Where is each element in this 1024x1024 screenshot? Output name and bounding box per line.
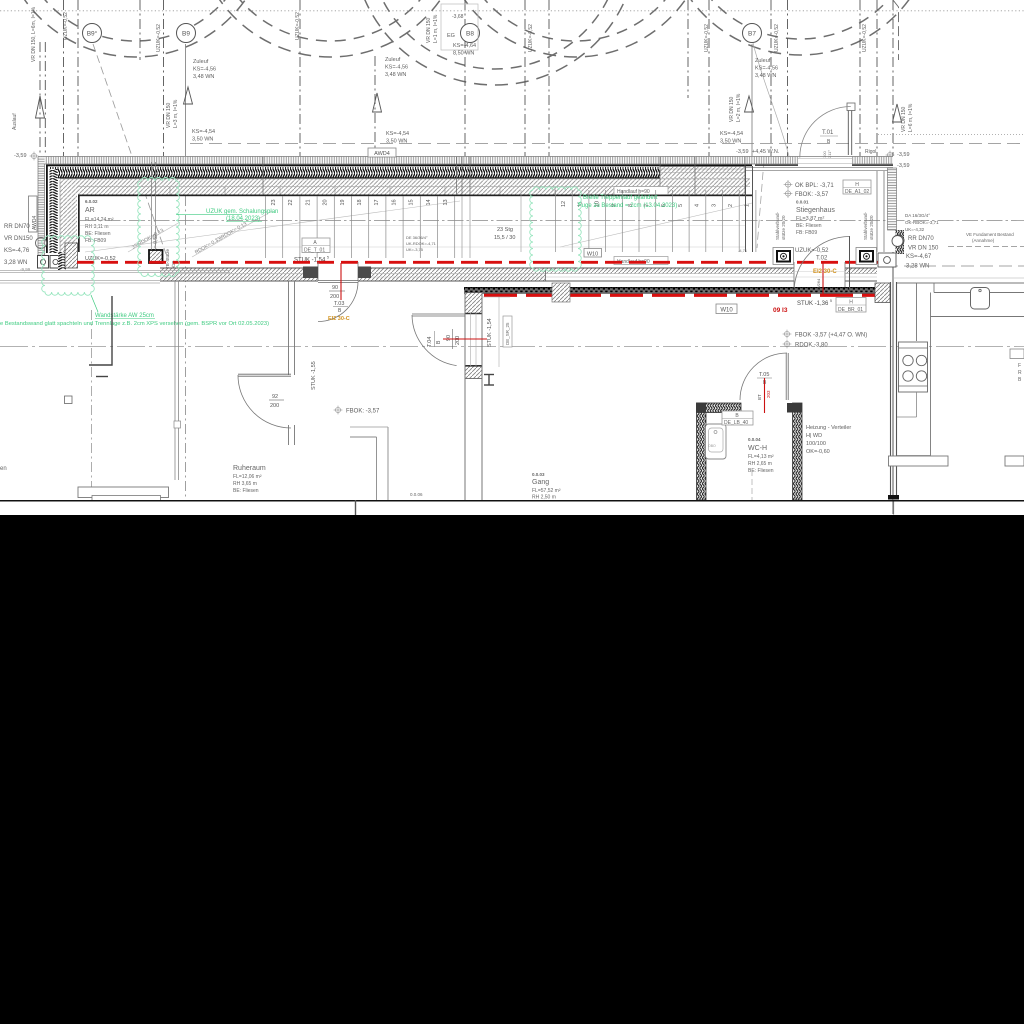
svg-text:FL=57,52 m²: FL=57,52 m² <box>532 488 561 494</box>
svg-text:3,50 WN: 3,50 WN <box>192 137 213 143</box>
svg-text:(Annahme): (Annahme) <box>972 238 995 243</box>
svg-text:DE_A1_02: DE_A1_02 <box>845 189 869 195</box>
svg-text:KS=-4,56: KS=-4,56 <box>193 67 216 73</box>
svg-text:DE_LB_40: DE_LB_40 <box>724 420 748 426</box>
svg-text:FB: FB09: FB: FB09 <box>796 230 817 236</box>
svg-text:FL=14,24 m²: FL=14,24 m² <box>85 217 114 223</box>
svg-text:-3,68: -3,68 <box>452 14 464 20</box>
svg-text:UZUK gem. Schalungsplan: UZUK gem. Schalungsplan <box>206 209 278 215</box>
svg-text:4: 4 <box>695 204 701 207</box>
svg-text:5: 5 <box>830 299 832 303</box>
svg-text:stütze 20/20: stütze 20/20 <box>781 215 786 240</box>
svg-text:UZUK=-0,52: UZUK=-0,52 <box>63 12 69 40</box>
svg-text:UZUK=-0,52: UZUK=-0,52 <box>528 24 534 52</box>
svg-text:T.03: T.03 <box>334 301 344 307</box>
svg-text:DE 36/36/4°: DE 36/36/4° <box>406 235 428 240</box>
svg-text:+4,45 W.N.: +4,45 W.N. <box>752 149 780 155</box>
svg-text:0.0.01: 0.0.01 <box>796 200 809 205</box>
svg-text:VE Fundament Bestand: VE Fundament Bestand <box>966 232 1014 237</box>
svg-text:AWD4: AWD4 <box>32 216 38 230</box>
svg-text:13: 13 <box>443 199 449 205</box>
svg-text:Stahlverbund-: Stahlverbund- <box>775 211 780 240</box>
svg-text:Wandstärke AW 25cm: Wandstärke AW 25cm <box>95 313 154 319</box>
svg-text:KS=-4,56: KS=-4,56 <box>385 65 408 71</box>
svg-text:OBO: OBO <box>708 444 716 448</box>
svg-text:B9°: B9° <box>87 30 98 38</box>
svg-text:Gang: Gang <box>532 479 549 486</box>
svg-text:203: 203 <box>766 390 771 398</box>
svg-text:UK=-3,75: UK=-3,75 <box>406 247 424 252</box>
svg-text:17: 17 <box>374 199 380 205</box>
svg-text:VR DN 150: VR DN 150 <box>901 106 907 132</box>
svg-text:BE: Fliesen: BE: Fliesen <box>796 223 822 229</box>
svg-text:200: 200 <box>330 294 339 300</box>
svg-text:VR DN 150: VR DN 150 <box>166 102 172 128</box>
svg-text:KS=-4,54: KS=-4,54 <box>720 131 743 137</box>
svg-text:AR: AR <box>85 207 95 214</box>
svg-text:DA 16/3G/4°: DA 16/3G/4° <box>905 213 930 218</box>
svg-text:e Bestandswand glatt spachteln: e Bestandswand glatt spachteln und Trenn… <box>0 321 269 327</box>
svg-text:23 Stg: 23 Stg <box>497 227 513 233</box>
svg-text:KS=-4,54: KS=-4,54 <box>192 129 215 135</box>
svg-text:RR DN70: RR DN70 <box>4 224 30 230</box>
svg-text:H: H <box>849 300 853 306</box>
svg-text:UZUK=-0,52: UZUK=-0,52 <box>774 24 780 52</box>
svg-text:VR DN 150, L=6m, I=1%: VR DN 150, L=6m, I=1% <box>31 6 37 62</box>
svg-text:EI2 30-C: EI2 30-C <box>328 316 350 322</box>
svg-text:20: 20 <box>323 199 329 205</box>
svg-text:EG: EG <box>447 33 455 39</box>
svg-text:DE_T_01: DE_T_01 <box>304 248 325 254</box>
svg-text:KS=-4,67: KS=-4,67 <box>906 254 932 260</box>
svg-text:stütze 20/20: stütze 20/20 <box>869 215 874 240</box>
svg-text:90: 90 <box>332 285 338 291</box>
svg-text:22: 22 <box>288 199 294 205</box>
svg-text:T.01: T.01 <box>822 130 834 136</box>
svg-text:RH 2,65 m: RH 2,65 m <box>748 461 772 467</box>
svg-text:5: 5 <box>678 204 684 207</box>
svg-text:15: 15 <box>409 199 415 205</box>
svg-text:KS=-4,56: KS=-4,56 <box>755 66 778 72</box>
svg-text:12: 12 <box>561 201 567 207</box>
svg-text:3,28 WN: 3,28 WN <box>4 260 27 266</box>
svg-text:(18.04.2023): (18.04.2023) <box>226 216 260 222</box>
svg-text:L=1 m, I=1%: L=1 m, I=1% <box>433 14 439 43</box>
svg-text:3,48 WN: 3,48 WN <box>755 73 776 79</box>
svg-text:KS=-4,76: KS=-4,76 <box>4 248 30 254</box>
svg-text:DE_BR_01: DE_BR_01 <box>838 307 863 313</box>
svg-text:Ruheraum: Ruheraum <box>233 465 266 472</box>
svg-text:-4,71: -4,71 <box>738 248 748 253</box>
svg-text:VR DN 150: VR DN 150 <box>908 246 939 252</box>
svg-text:0.0.03: 0.0.03 <box>532 472 545 477</box>
svg-text:EI2 30-C: EI2 30-C <box>813 269 837 275</box>
svg-text:-3,59: -3,59 <box>14 153 27 159</box>
svg-text:3: 3 <box>711 204 717 207</box>
svg-text:-9,99: -9,99 <box>20 267 31 272</box>
svg-text:VR DN 150: VR DN 150 <box>426 17 432 43</box>
svg-text:UK-RDOK=-4,71: UK-RDOK=-4,71 <box>406 241 437 246</box>
svg-text:16: 16 <box>391 199 397 205</box>
svg-text:19: 19 <box>340 199 346 205</box>
svg-text:Zuleuf: Zuleuf <box>193 59 209 65</box>
svg-text:VR DN150: VR DN150 <box>4 236 33 242</box>
svg-text:Stiegenhaus: Stiegenhaus <box>796 207 835 214</box>
svg-text:FL=12,06 m²: FL=12,06 m² <box>233 474 262 480</box>
svg-text:0.0.06: 0.0.06 <box>410 492 423 497</box>
svg-text:L=3 m, I=1%: L=3 m, I=1% <box>173 99 179 128</box>
svg-text:STUK -1,55: STUK -1,55 <box>311 361 317 390</box>
svg-text:Heizung - Verteiler: Heizung - Verteiler <box>806 425 851 431</box>
svg-text:H: H <box>855 182 859 188</box>
svg-text:98/264: 98/264 <box>816 278 821 291</box>
svg-text:FBOK -3,57 (+4,47 O. WN): FBOK -3,57 (+4,47 O. WN) <box>795 333 867 339</box>
svg-text:UZUK=-0,52: UZUK=-0,52 <box>295 12 301 40</box>
svg-text:W10: W10 <box>587 252 598 258</box>
svg-text:-3,59: -3,59 <box>897 163 910 169</box>
svg-text:Zuleuf: Zuleuf <box>755 58 771 64</box>
svg-text:FBOK: -3,57: FBOK: -3,57 <box>795 192 829 198</box>
svg-text:0.0.04: 0.0.04 <box>748 437 761 442</box>
svg-text:KS=-4,64: KS=-4,64 <box>453 43 476 49</box>
svg-text:VR DN 150: VR DN 150 <box>729 96 735 122</box>
svg-text:Breite Treppenlauf geändert: Breite Treppenlauf geändert <box>583 195 658 201</box>
svg-text:100/100: 100/100 <box>806 441 826 447</box>
svg-text:Zuleuf: Zuleuf <box>385 57 401 63</box>
svg-text:BT: BT <box>757 394 762 400</box>
svg-text:OK BPL: -3,71: OK BPL: -3,71 <box>795 183 834 189</box>
svg-text:OK-RBOK=-3,71: OK-RBOK=-3,71 <box>905 220 939 225</box>
svg-text:B7: B7 <box>748 31 756 38</box>
svg-text:UZUK=-0,52: UZUK=-0,52 <box>704 24 710 52</box>
svg-text:3,28 WN: 3,28 WN <box>906 264 929 270</box>
svg-text:DE_SR_25: DE_SR_25 <box>505 322 510 345</box>
svg-text:2: 2 <box>728 204 734 207</box>
svg-text:92: 92 <box>272 394 278 400</box>
svg-text:21: 21 <box>305 199 311 205</box>
svg-text:F: F <box>1018 363 1021 369</box>
svg-text:L=2 m, I=1%: L=2 m, I=1% <box>736 93 742 122</box>
svg-text:RH 3,11 m: RH 3,11 m <box>85 224 109 230</box>
svg-text:UZUK=-0,52: UZUK=-0,52 <box>156 24 162 52</box>
svg-text:H| WD: H| WD <box>806 433 822 439</box>
svg-text:T.05: T.05 <box>759 372 769 378</box>
svg-text:UK=-4,32: UK=-4,32 <box>905 227 925 232</box>
svg-text:STUK -1,54: STUK -1,54 <box>487 318 493 347</box>
svg-text:09 I3: 09 I3 <box>773 307 788 314</box>
svg-text:211°: 211° <box>827 150 832 158</box>
svg-text:6.0.02: 6.0.02 <box>85 199 98 204</box>
svg-text:FL=4,13 m²: FL=4,13 m² <box>748 454 774 460</box>
svg-text:Fuge zu Bestand = 2cm (13.04.2: Fuge zu Bestand = 2cm (13.04.2023) <box>578 203 677 209</box>
svg-text:90: 90 <box>446 335 452 341</box>
svg-text:UZUK=-0,52: UZUK=-0,52 <box>862 24 868 52</box>
svg-text:3,48 WN: 3,48 WN <box>385 72 406 78</box>
svg-text:STUK -1,36: STUK -1,36 <box>797 301 829 307</box>
svg-text:-3,59: -3,59 <box>736 149 749 155</box>
svg-text:Rigol: Rigol <box>865 149 876 155</box>
svg-text:T.02: T.02 <box>816 256 828 262</box>
svg-text:Stahlverbund-: Stahlverbund- <box>863 211 868 240</box>
svg-text:15,5 / 30: 15,5 / 30 <box>494 235 515 241</box>
svg-text:23: 23 <box>271 199 277 205</box>
svg-text:B9: B9 <box>182 31 190 38</box>
svg-text:18: 18 <box>357 199 363 205</box>
svg-text:B8: B8 <box>466 31 474 38</box>
svg-text:OK=-0,60: OK=-0,60 <box>806 449 830 455</box>
svg-text:T.04: T.04 <box>427 337 433 347</box>
svg-text:RR DN70: RR DN70 <box>908 236 934 242</box>
svg-text:FB: FB09: FB: FB09 <box>85 238 106 244</box>
svg-text:FL=3,87 m²: FL=3,87 m² <box>796 216 824 222</box>
svg-text:FBOK: -3,57: FBOK: -3,57 <box>346 409 380 415</box>
svg-text:14: 14 <box>426 199 432 205</box>
svg-text:RH 2,50 m: RH 2,50 m <box>532 495 556 501</box>
svg-text:R: R <box>1018 370 1022 376</box>
svg-text:-3,59: -3,59 <box>897 152 910 158</box>
svg-text:W10: W10 <box>720 308 733 314</box>
svg-text:RH 3,65 m: RH 3,65 m <box>233 481 257 487</box>
svg-text:RDOK -3,80: RDOK -3,80 <box>795 343 828 349</box>
svg-text:200: 200 <box>455 336 461 345</box>
svg-text:WC-H: WC-H <box>748 445 767 452</box>
svg-text:200: 200 <box>270 403 279 409</box>
svg-text:BE: Fliesen: BE: Fliesen <box>233 488 259 494</box>
svg-text:L=6 m, I=1%: L=6 m, I=1% <box>908 103 914 132</box>
svg-text:3,48 WN: 3,48 WN <box>193 74 214 80</box>
svg-text:en: en <box>0 466 7 472</box>
svg-text:AWD4: AWD4 <box>374 151 390 157</box>
svg-text:KS=-4,54: KS=-4,54 <box>386 131 409 137</box>
svg-text:8,50 WN: 8,50 WN <box>453 51 474 57</box>
svg-text:Auslauf: Auslauf <box>12 113 18 130</box>
svg-text:5: 5 <box>327 256 329 260</box>
